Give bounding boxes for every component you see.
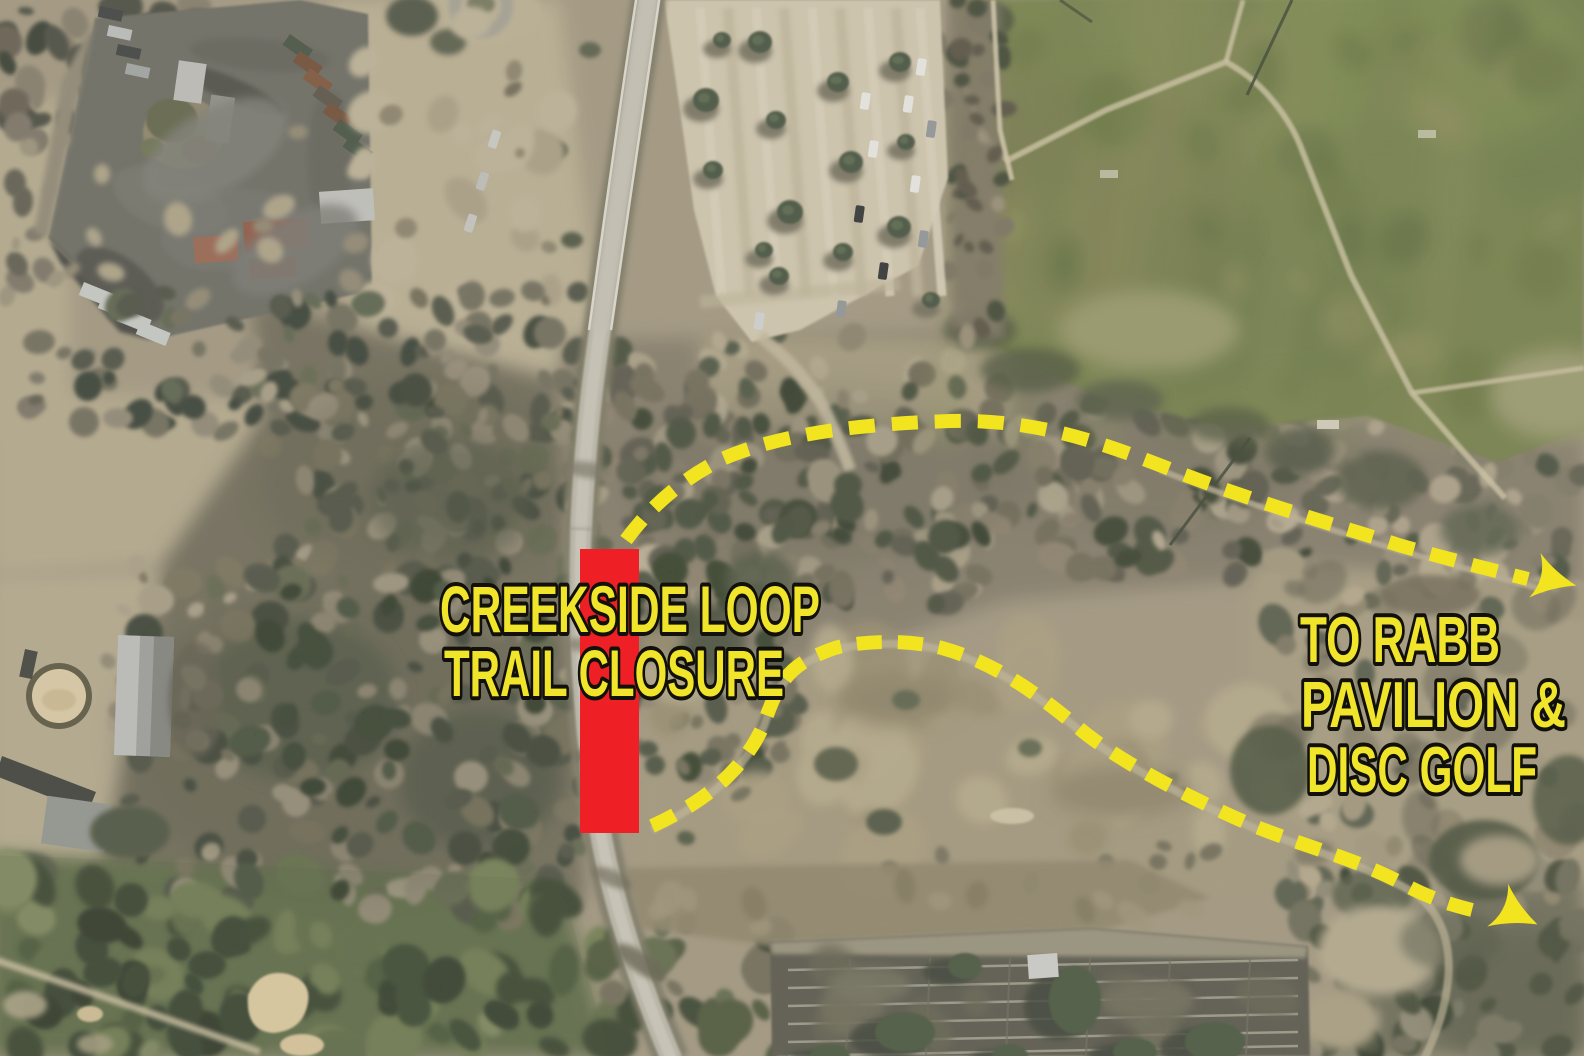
- svg-text:DISC GOLF: DISC GOLF: [1307, 733, 1537, 806]
- svg-text:TO RABB: TO RABB: [1300, 603, 1500, 676]
- svg-text:CREEKSIDE LOOP: CREEKSIDE LOOP: [440, 572, 820, 646]
- svg-text:PAVILION &: PAVILION &: [1301, 668, 1566, 741]
- svg-text:TRAIL CLOSURE: TRAIL CLOSURE: [444, 636, 784, 710]
